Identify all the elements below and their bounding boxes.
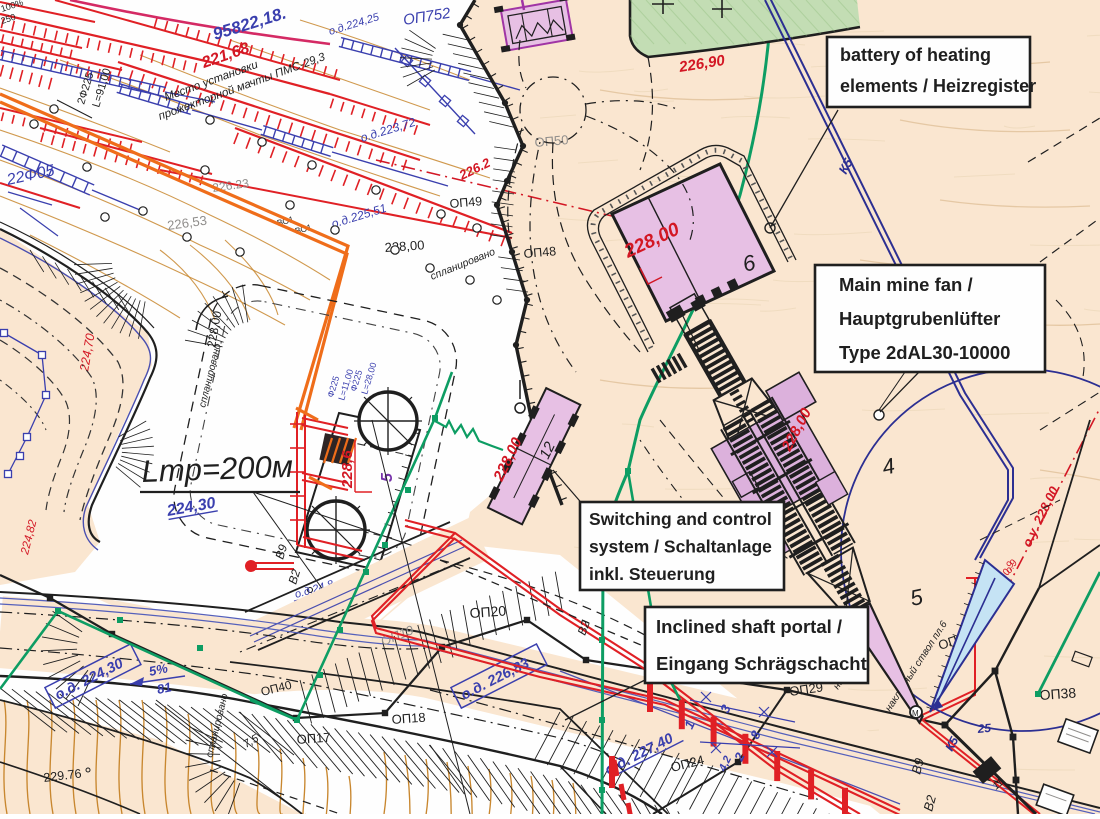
svg-text:ОП18: ОП18 (391, 710, 426, 727)
svg-text:ОП49: ОП49 (449, 194, 483, 211)
svg-text:system / Schaltanlage: system / Schaltanlage (589, 537, 772, 557)
svg-text:ОП38: ОП38 (1039, 684, 1077, 703)
svg-text:Main mine fan /: Main mine fan / (839, 274, 973, 295)
svg-text:inkl. Steuerung: inkl. Steuerung (589, 564, 715, 584)
svg-text:Eingang Schrägschacht: Eingang Schrägschacht (656, 653, 867, 674)
svg-text:Hauptgrubenlüfter: Hauptgrubenlüfter (839, 308, 1000, 329)
svg-text:Lmp=200м: Lmp=200м (141, 449, 294, 489)
svg-text:Switching and control: Switching and control (589, 509, 772, 529)
svg-text:ОП17: ОП17 (296, 730, 331, 747)
svg-text:25: 25 (976, 721, 992, 736)
svg-text:228,00: 228,00 (384, 237, 425, 255)
svg-text:Inclined shaft portal /: Inclined shaft portal / (656, 616, 842, 637)
svg-text:battery of heating: battery of heating (840, 45, 991, 65)
svg-text:ОП50: ОП50 (534, 132, 569, 150)
svg-text:81: 81 (156, 679, 173, 697)
svg-text:Type 2dAL30-10000: Type 2dAL30-10000 (839, 342, 1010, 363)
svg-text:ОП20: ОП20 (469, 602, 507, 621)
svg-text:M: M (912, 709, 919, 718)
svg-text:228,6: 228,6 (339, 450, 356, 489)
svg-text:ОП48: ОП48 (523, 244, 557, 261)
svg-text:elements / Heizregister: elements / Heizregister (840, 76, 1036, 96)
